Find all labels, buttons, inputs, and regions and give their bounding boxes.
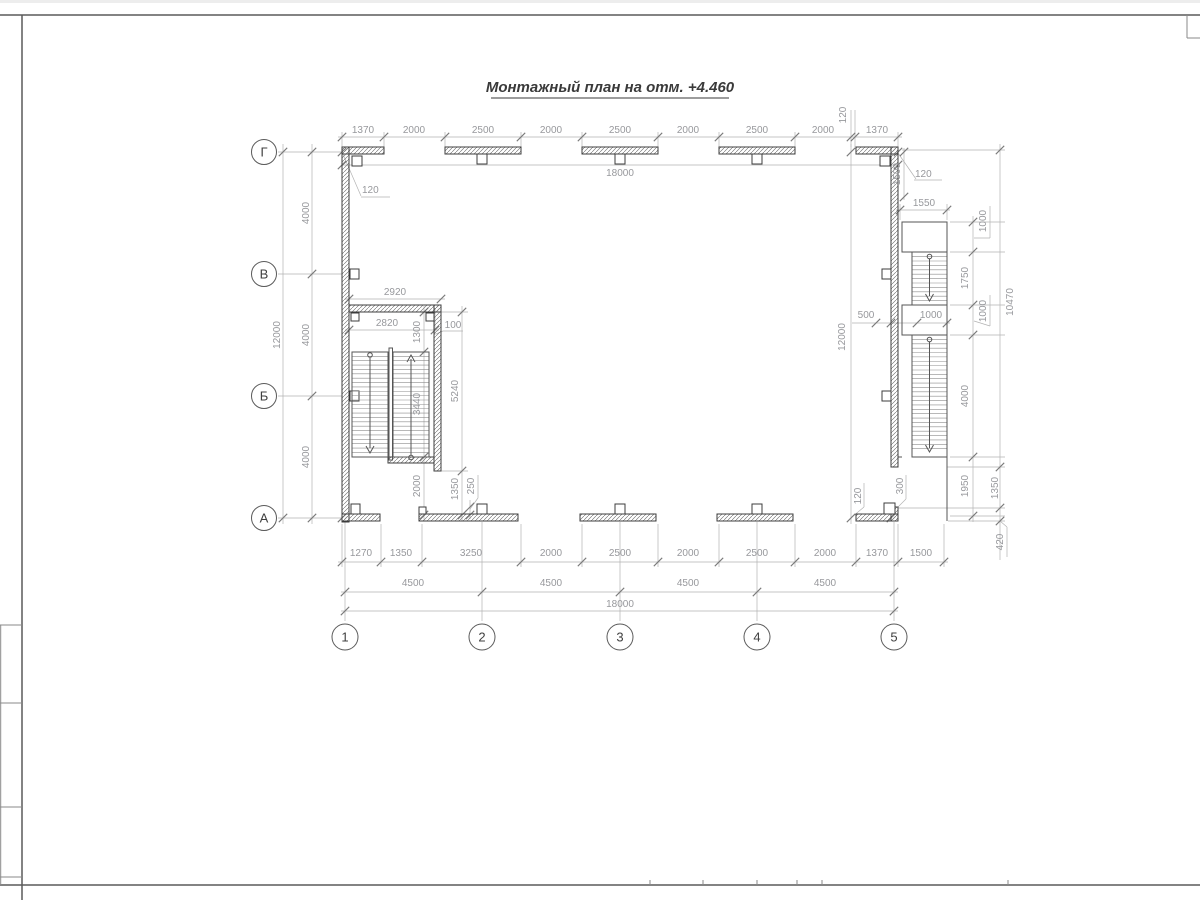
axis-row-label: А bbox=[260, 511, 269, 526]
dim-label: 1350 bbox=[390, 548, 413, 559]
column-marker bbox=[350, 391, 359, 401]
wall-segment bbox=[419, 514, 518, 521]
column-marker bbox=[419, 507, 426, 514]
axis-col-label: 1 bbox=[341, 630, 348, 645]
dim-label: 1300 bbox=[412, 320, 423, 343]
column-marker bbox=[477, 504, 487, 514]
dim-label: 120 bbox=[915, 169, 932, 180]
wall-segment bbox=[349, 305, 441, 312]
dim-label: 1500 bbox=[892, 162, 903, 185]
drawing-sheet: Монтажный план на отм. +4.460 bbox=[0, 0, 1200, 900]
dim-label: 250 bbox=[466, 477, 477, 494]
dim-label: 2000 bbox=[412, 474, 423, 497]
wall-segment bbox=[717, 514, 793, 521]
dimension-labels: 1370 2000 2500 2000 2500 2000 2500 2000 … bbox=[272, 106, 1016, 610]
column-marker bbox=[615, 154, 625, 164]
dim-label: 5240 bbox=[450, 379, 461, 402]
dim-label: 18000 bbox=[606, 168, 634, 179]
sheet-frame bbox=[0, 0, 1200, 900]
wall-segment bbox=[342, 147, 349, 522]
dim-label: 2500 bbox=[609, 548, 632, 559]
dim-label: 1000 bbox=[920, 310, 943, 321]
dim-label: 18000 bbox=[606, 599, 634, 610]
dim-label: 120 bbox=[853, 487, 864, 504]
dim-label: 3440 bbox=[412, 392, 423, 415]
axis-col-label: 5 bbox=[890, 630, 897, 645]
dim-label: 2920 bbox=[384, 287, 407, 298]
dim-label: 2000 bbox=[677, 548, 700, 559]
wall-segment bbox=[580, 514, 656, 521]
dim-label: 3250 bbox=[460, 548, 483, 559]
axis-row-label: Г bbox=[260, 145, 267, 160]
axis-col-label: 2 bbox=[478, 630, 485, 645]
dim-label: 2500 bbox=[472, 125, 495, 136]
column-marker bbox=[351, 504, 360, 514]
dim-label: 2000 bbox=[540, 125, 563, 136]
dim-label: 2500 bbox=[609, 125, 632, 136]
dim-label: 4000 bbox=[301, 445, 312, 468]
dim-label: 4500 bbox=[814, 578, 837, 589]
dim-label: 4500 bbox=[540, 578, 563, 589]
column-marker bbox=[615, 504, 625, 514]
dim-label: 2000 bbox=[677, 125, 700, 136]
dim-label: 1500 bbox=[910, 548, 933, 559]
dim-label: 4000 bbox=[301, 201, 312, 224]
dim-label: 1000 bbox=[978, 299, 989, 322]
wall-segment bbox=[445, 147, 521, 154]
column-marker bbox=[350, 269, 359, 279]
column-marker bbox=[426, 313, 434, 321]
wall-segment bbox=[434, 305, 441, 471]
floor-plan-canvas: Монтажный план на отм. +4.460 bbox=[0, 0, 1200, 900]
dim-label: 1750 bbox=[960, 266, 971, 289]
dim-label: 2500 bbox=[746, 125, 769, 136]
dim-label: 2820 bbox=[376, 318, 399, 329]
column-marker bbox=[477, 154, 487, 164]
dim-label: 2000 bbox=[540, 548, 563, 559]
dim-label: 2000 bbox=[403, 125, 426, 136]
dim-label: 4500 bbox=[402, 578, 425, 589]
wall-segment bbox=[582, 147, 658, 154]
wall-segment bbox=[342, 514, 380, 521]
dim-label: 2500 bbox=[746, 548, 769, 559]
column-marker bbox=[351, 313, 359, 321]
dim-label: 1270 bbox=[350, 548, 373, 559]
dim-label: 500 bbox=[858, 310, 875, 321]
page-title: Монтажный план на отм. +4.460 bbox=[486, 79, 735, 96]
dim-label: 4000 bbox=[960, 384, 971, 407]
dim-label: 12000 bbox=[272, 321, 283, 349]
title-block: Монтажный план на отм. +4.460 bbox=[486, 79, 735, 98]
column-marker bbox=[882, 391, 891, 401]
dim-label: 1000 bbox=[978, 209, 989, 232]
dim-label: 2000 bbox=[812, 125, 835, 136]
dim-label: 1370 bbox=[866, 125, 889, 136]
dim-label: 1350 bbox=[990, 476, 1001, 499]
column-marker bbox=[880, 156, 890, 166]
dim-label: 300 bbox=[895, 477, 906, 494]
walkline-start-dot bbox=[368, 353, 373, 358]
axis-col-label: 3 bbox=[616, 630, 623, 645]
column-marker bbox=[752, 154, 762, 164]
column-marker bbox=[752, 504, 762, 514]
dim-label: 1370 bbox=[866, 548, 889, 559]
dim-label: 420 bbox=[995, 533, 1006, 550]
dim-label: 1950 bbox=[960, 474, 971, 497]
axis-row-label: Б bbox=[260, 389, 269, 404]
wall-segment bbox=[891, 147, 898, 467]
dim-label: 4000 bbox=[301, 323, 312, 346]
axis-row-label: В bbox=[260, 267, 269, 282]
column-marker bbox=[884, 503, 895, 514]
dim-label: 120 bbox=[838, 106, 849, 123]
dim-label: 1370 bbox=[352, 125, 375, 136]
dim-label: 12000 bbox=[837, 323, 848, 351]
dim-label: 100 bbox=[445, 320, 462, 331]
dim-label: 120 bbox=[362, 185, 379, 196]
dim-label: 2000 bbox=[814, 548, 837, 559]
dim-label: 4500 bbox=[677, 578, 700, 589]
column-marker bbox=[352, 156, 362, 166]
dim-label: 10470 bbox=[1005, 288, 1016, 316]
walls bbox=[342, 147, 898, 522]
axis-col-label: 4 bbox=[753, 630, 760, 645]
dim-label: 1550 bbox=[913, 198, 936, 209]
wall-segment bbox=[719, 147, 795, 154]
walkline-down-arrow bbox=[366, 358, 374, 453]
dim-label: 1350 bbox=[450, 477, 461, 500]
column-marker bbox=[882, 269, 891, 279]
